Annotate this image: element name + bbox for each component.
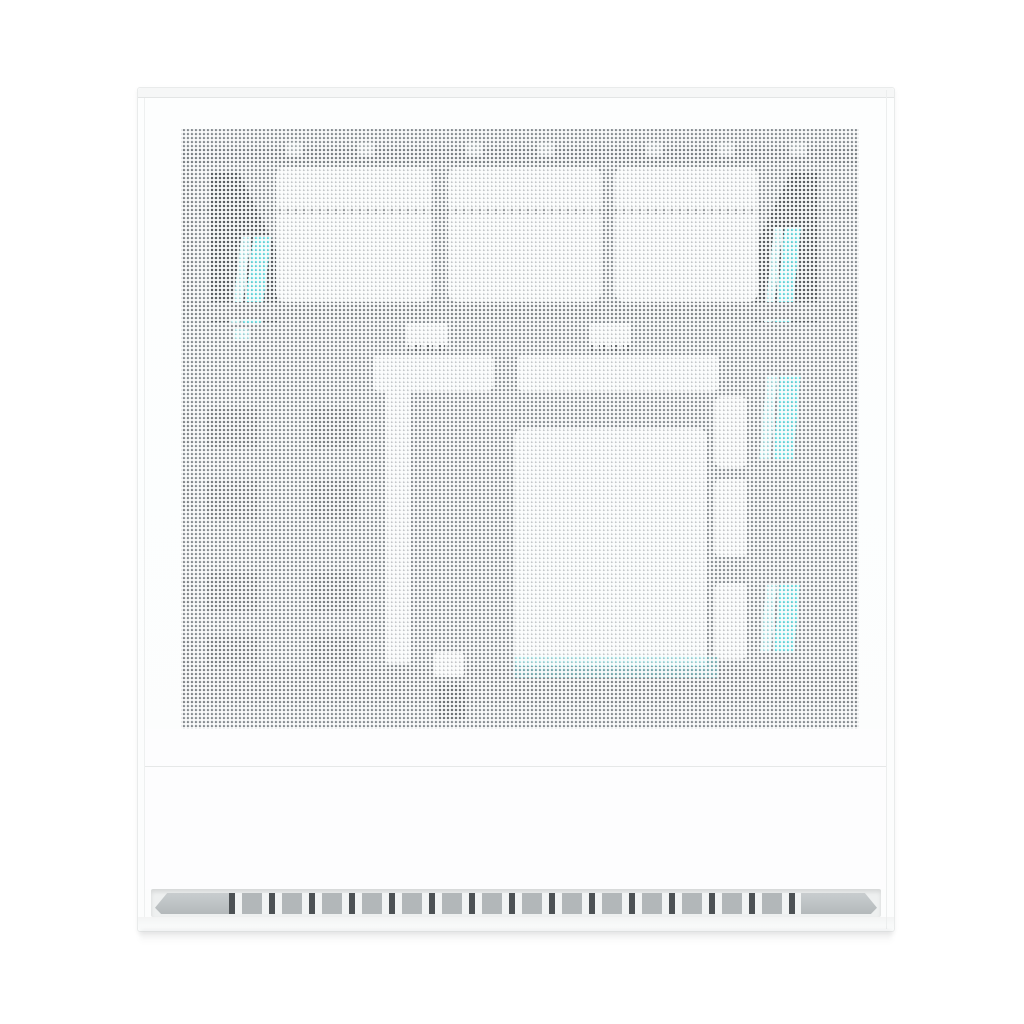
top-fan-3 [615,167,758,302]
bottom-white-tab [434,653,464,677]
lower-solid-panel [145,729,886,889]
bottom-vent [151,889,881,917]
front-edge-strip [181,481,195,511]
grommet-blob [311,573,357,613]
fan-bracket-line [181,207,859,214]
rgb-strip-rear-lower [760,585,800,653]
floor-shadow [140,930,892,943]
rail-tab [538,142,554,156]
pc-case [137,87,895,932]
motherboard-top-bar-right [517,355,719,391]
rail-tab [791,142,807,156]
grommet-blob [311,409,357,449]
top-frame-rail [181,147,859,163]
vent-bevel-right [801,893,877,914]
front-edge-strip [181,637,195,667]
vent-bevel-left [155,893,231,914]
cable-tab-dashes [408,345,448,352]
central-component-plate [515,429,707,669]
front-edge-strip [181,575,195,605]
cable-tab-dashes [591,345,631,352]
product-photo-scene [0,0,1024,1024]
rear-io-block [715,397,747,467]
front-edge-strip [181,167,195,319]
vent-slot-row [229,893,803,914]
under-fan-rail [181,302,859,319]
mesh-side-panel [181,129,859,729]
grommet-blob [207,479,259,521]
case-top-cap [138,88,894,98]
rear-io-block [715,583,747,659]
rear-io-block [715,479,747,557]
bottom-connector-blob [437,685,467,719]
rgb-strip-rear-middle [759,375,800,459]
rail-tab [646,142,662,156]
top-fan-1 [276,167,432,302]
rail-tab [466,142,482,156]
front-column-strip [385,391,411,663]
rgb-glow-bottom [513,656,719,678]
rail-tab [358,142,374,156]
grommet-blob [207,409,259,449]
panel-seam-line [145,766,886,767]
front-edge-strip [181,411,195,443]
case-base [138,917,894,930]
rail-tab [718,142,734,156]
grommet-blob [207,573,259,613]
motherboard-top-bar-left [373,355,493,391]
grommet-blob [311,479,357,521]
top-fan-2 [448,167,601,302]
rgb-strip-front-dot [233,329,249,341]
rail-tab [286,142,302,156]
